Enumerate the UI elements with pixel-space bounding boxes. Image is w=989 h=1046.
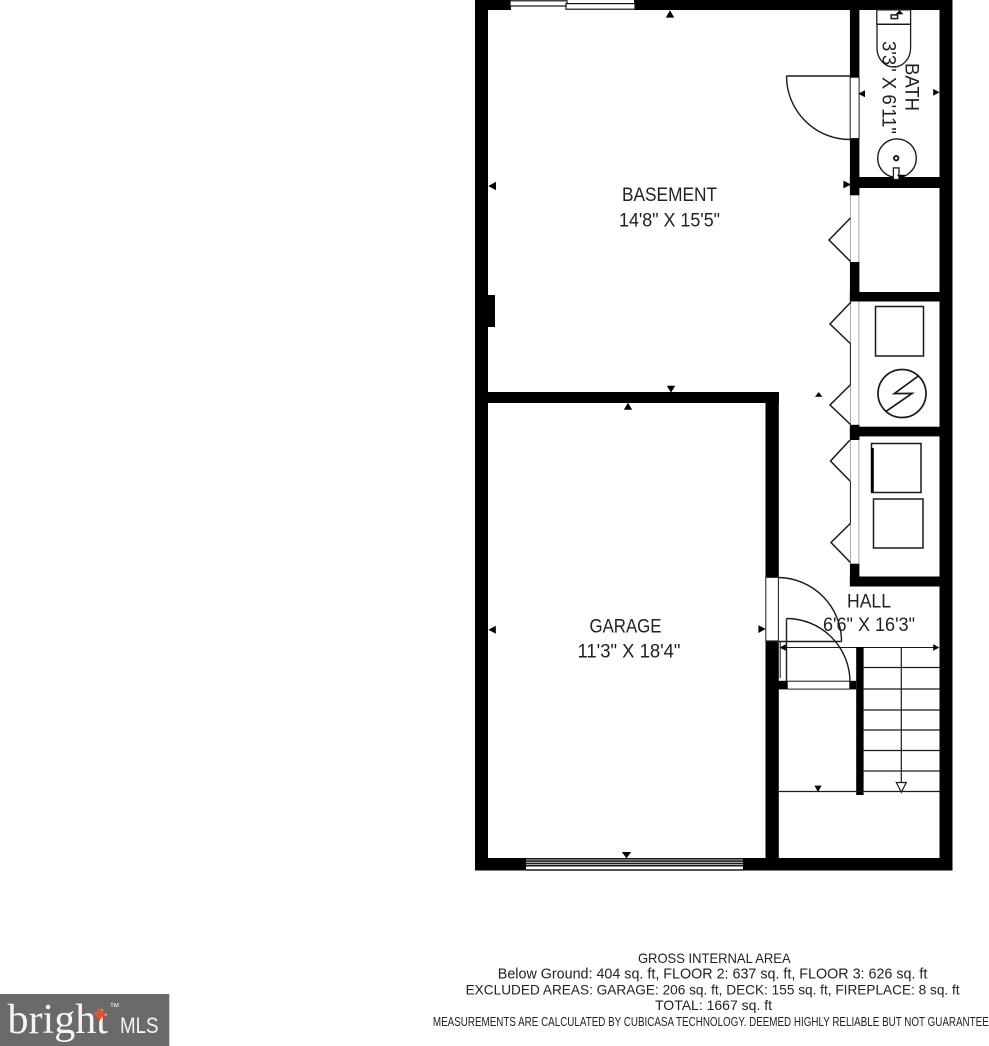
svg-text:bright: bright: [8, 996, 109, 1043]
svg-text:TOTAL: 1667 sq. ft: TOTAL: 1667 sq. ft: [655, 997, 772, 1013]
svg-text:6'6" X 16'3": 6'6" X 16'3": [823, 615, 915, 636]
svg-text:3'3" X 6'11": 3'3" X 6'11": [878, 41, 899, 134]
svg-text:MLS: MLS: [120, 1013, 159, 1038]
svg-text:BASEMENT: BASEMENT: [622, 185, 717, 206]
svg-text:GROSS INTERNAL AREA: GROSS INTERNAL AREA: [638, 950, 791, 966]
svg-text:MEASUREMENTS ARE CALCULATED BY: MEASUREMENTS ARE CALCULATED BY CUBICASA …: [433, 1014, 989, 1029]
svg-text:EXCLUDED AREAS: GARAGE: 206 sq: EXCLUDED AREAS: GARAGE: 206 sq. ft, DECK…: [466, 981, 960, 997]
svg-text:Below Ground: 404 sq. ft, FLOO: Below Ground: 404 sq. ft, FLOOR 2: 637 s…: [498, 967, 928, 983]
svg-text:14'8" X 15'5": 14'8" X 15'5": [619, 211, 720, 232]
svg-text:BATH: BATH: [901, 63, 922, 111]
svg-text:GARAGE: GARAGE: [590, 617, 662, 638]
svg-text:HALL: HALL: [847, 591, 891, 612]
svg-text:11'3" X 18'4": 11'3" X 18'4": [578, 641, 681, 662]
svg-text:™: ™: [110, 1002, 120, 1013]
